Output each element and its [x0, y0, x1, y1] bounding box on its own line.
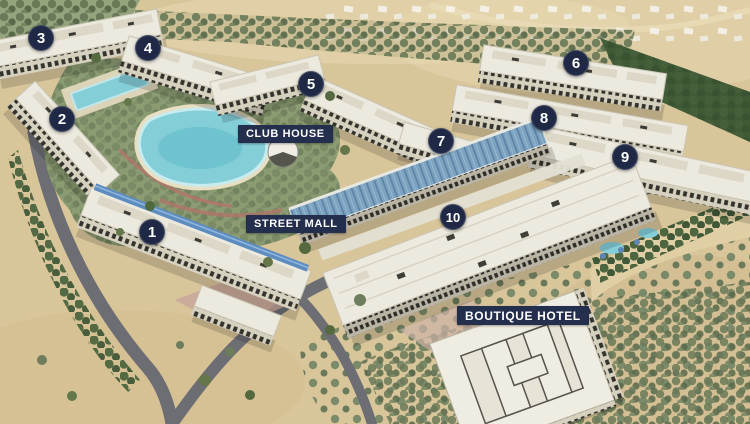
label-street-mall: STREET MALL	[246, 215, 346, 233]
marker-building-3[interactable]: 3	[28, 25, 54, 51]
label-boutique-hotel: BOUTIQUE HOTEL	[457, 306, 589, 325]
marker-building-5[interactable]: 5	[298, 71, 324, 97]
aerial-masterplan-render	[0, 0, 750, 424]
marker-building-6[interactable]: 6	[563, 50, 589, 76]
marker-building-9[interactable]: 9	[612, 144, 638, 170]
marker-building-1[interactable]: 1	[139, 219, 165, 245]
marker-building-10[interactable]: 10	[440, 204, 466, 230]
marker-building-4[interactable]: 4	[135, 35, 161, 61]
marker-building-2[interactable]: 2	[49, 106, 75, 132]
marker-building-8[interactable]: 8	[531, 105, 557, 131]
label-club-house: CLUB HOUSE	[238, 125, 333, 143]
marker-building-7[interactable]: 7	[428, 128, 454, 154]
masterplan: 1 2 3 4 5 6 7 8 9 10 CLUB HOUSE STREET M…	[0, 0, 750, 424]
